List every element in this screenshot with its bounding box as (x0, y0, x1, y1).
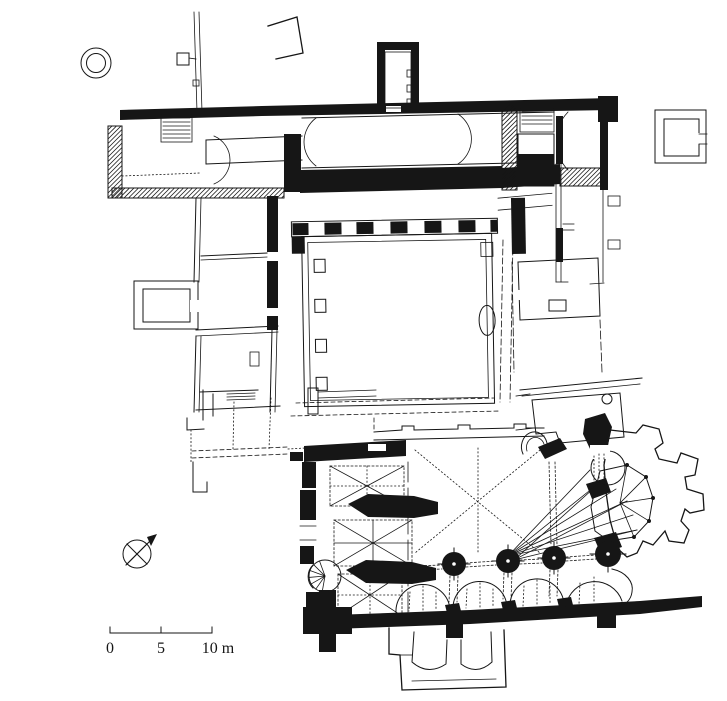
south-wall (305, 596, 702, 630)
church (290, 413, 704, 690)
west-annex (134, 281, 199, 329)
north-arrow-icon (123, 534, 157, 568)
door-tab (608, 196, 620, 206)
well-icon (81, 48, 111, 78)
vault-arc (214, 136, 230, 184)
drum-pier (492, 545, 524, 577)
drum-pier (538, 542, 570, 574)
church-west-tower (290, 440, 438, 584)
north-transept-chapels (521, 413, 625, 488)
southwest-ruins (187, 388, 376, 492)
north-latrine-tower (377, 42, 419, 110)
drum-pier (438, 548, 470, 580)
hemicycle-columns (620, 463, 655, 539)
cloister-garth (291, 193, 556, 407)
column-base (602, 394, 612, 404)
vault-arc (304, 118, 316, 166)
vault-arc (458, 114, 471, 164)
north-range-hall (108, 96, 618, 198)
scale-label-10m: 10 m (202, 640, 235, 657)
buttress (315, 299, 326, 312)
rib-vault-bay (334, 520, 412, 566)
stair-icon (227, 393, 255, 400)
outbuilding-outline (268, 17, 303, 59)
detached-square-building (655, 110, 707, 163)
east-range (512, 258, 602, 372)
stair-icon (520, 108, 554, 132)
sacristy-ruins (516, 378, 642, 443)
scale-bar: 0 5 10 m (106, 627, 235, 657)
buttress (314, 259, 325, 272)
cloister-walks (291, 240, 513, 416)
nave-construction-lines (415, 448, 540, 553)
scale-label-5: 5 (157, 640, 165, 657)
door-gap (696, 133, 704, 144)
tomb-feature (549, 300, 566, 311)
compound-pier (346, 560, 436, 584)
drum-pier (590, 536, 626, 572)
door-tab (608, 240, 620, 249)
compound-pier (348, 494, 438, 518)
floor-plan-page: 0 5 10 m (0, 0, 727, 701)
scale-label-0: 0 (106, 640, 114, 657)
stair-icon (161, 114, 192, 142)
west-range (194, 196, 280, 412)
floor-plan-drawing: 0 5 10 m (0, 0, 727, 701)
buttressed-wall (374, 424, 544, 432)
south-wall-buttresses (303, 590, 616, 652)
checkered-pier-wall (292, 220, 497, 236)
precinct-wall-fragment (177, 12, 202, 112)
buttress (315, 339, 326, 352)
